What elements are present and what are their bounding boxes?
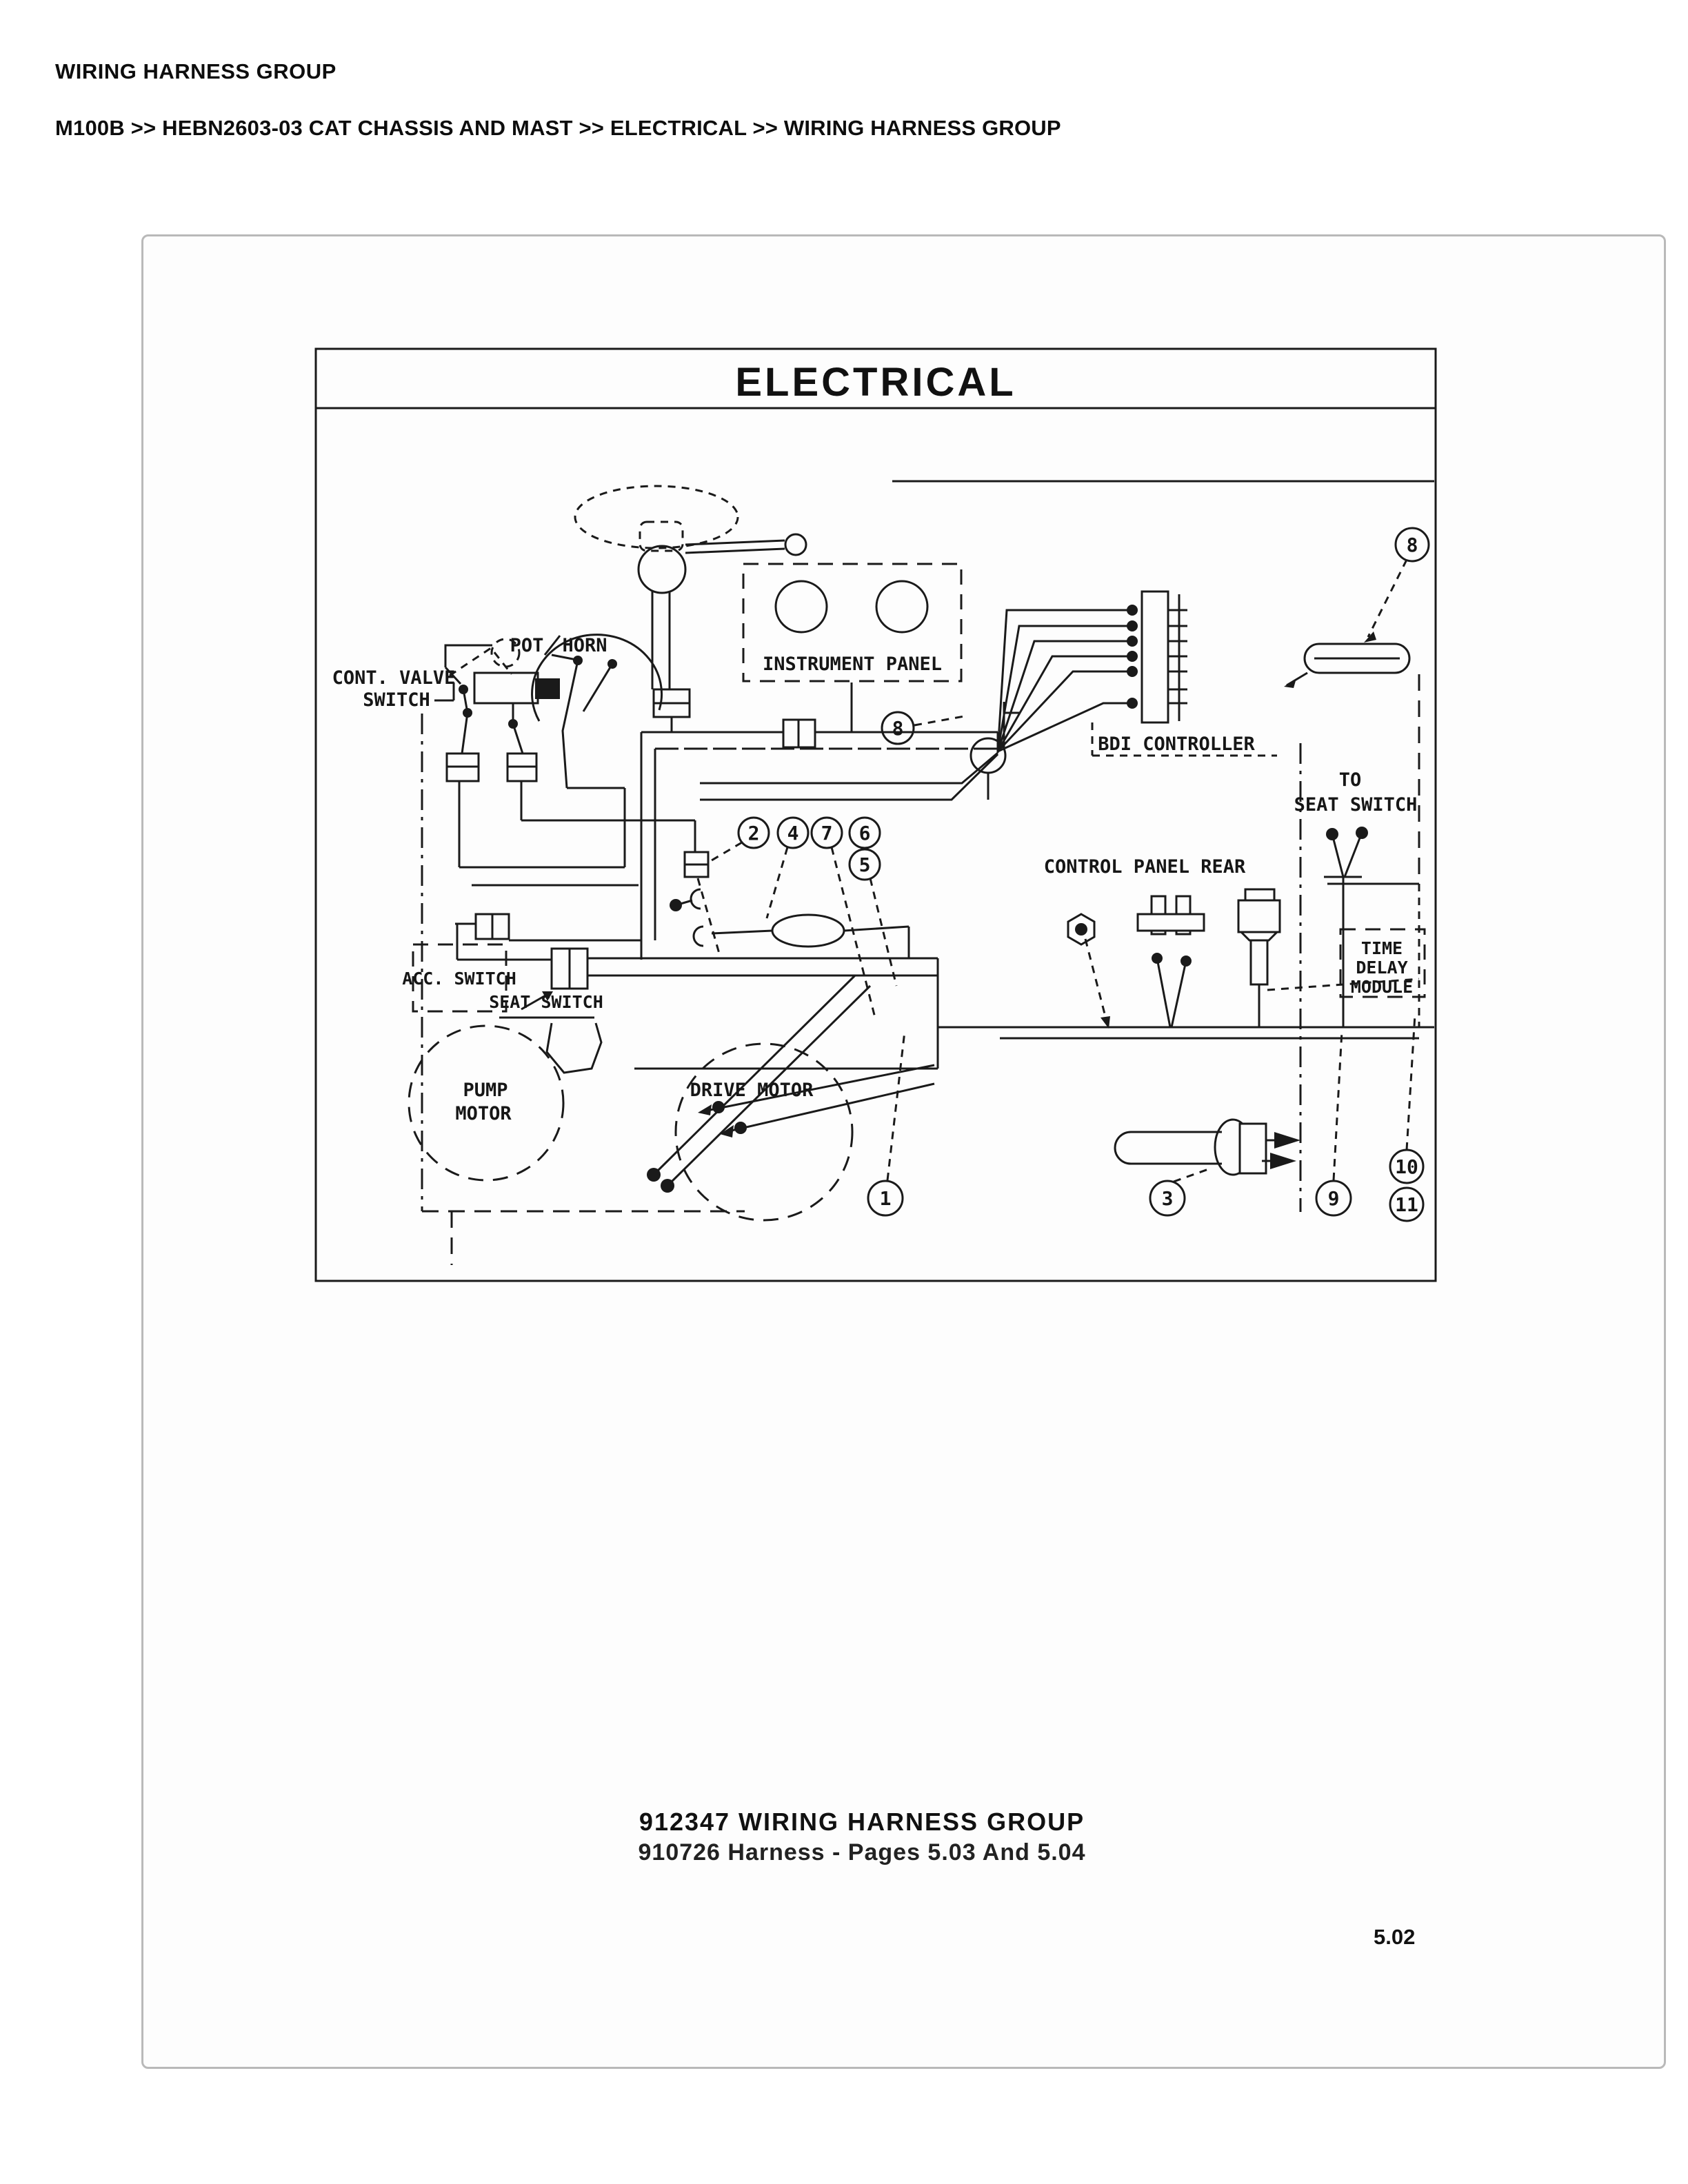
cont-valve-switch-symbol: CONT. VALVE SWITCH [332,645,492,754]
time-delay-label-3: MODULE [1351,977,1413,997]
caption-part-number: 912347 WIRING HARNESS GROUP [639,1808,1086,1837]
callout-9: 9 [1328,1187,1340,1210]
to-seat-switch-label-2: SEAT SWITCH [1294,794,1418,816]
time-delay-label-1: TIME [1361,938,1403,958]
key-switch [1245,889,1274,900]
time-delay-label-2: DELAY [1356,958,1407,978]
diagram-title: ELECTRICAL [735,360,1016,405]
callout-11: 11 [1395,1193,1418,1216]
connector-cluster [447,754,695,960]
pump-motor-label-2: MOTOR [455,1103,512,1124]
bdi-controller-label: BDI CONTROLLER [1098,734,1255,755]
callout-5: 5 [859,853,871,876]
callout-8-panel: 8 [892,717,904,740]
pot-label: POT [510,635,544,656]
callout-7: 7 [821,822,833,845]
cont-valve-switch-label-2: SWITCH [363,689,430,711]
steering-wheel-symbol [575,486,806,732]
pot-symbol: POT [450,635,560,754]
upper-harness-run: 8 [892,481,1434,884]
to-seat-switch-label-1: TO [1339,769,1362,791]
callout-8-harness: 8 [1407,534,1418,556]
time-delay-module: TIME DELAY MODULE [1340,884,1425,1027]
seat-switch-label: SEAT SWITCH [489,992,603,1012]
callout-6: 6 [859,822,871,845]
drive-motor-label: DRIVE MOTOR [690,1080,814,1101]
cont-valve-switch-label-1: CONT. VALVE [332,667,456,689]
control-panel-rear-label: CONTROL PANEL REAR [1044,856,1246,878]
manual-page: WIRING HARNESS GROUP M100B >> HEBN2603-0… [0,0,1688,2184]
instrument-panel-label: INSTRUMENT PANEL [763,654,942,675]
acc-switch-label: ACC. SWITCH [402,969,516,989]
lower-harness-bus [586,958,1434,1069]
figure-caption: 912347 WIRING HARNESS GROUP 910726 Harne… [639,1808,1086,1866]
instrument-panel-symbol: INSTRUMENT PANEL [743,564,961,681]
horn-label: HORN [562,635,607,656]
bdi-controller-symbol: BDI CONTROLLER [998,591,1277,756]
callout-2: 2 [748,822,760,845]
callout-4: 4 [787,822,799,845]
callout-3: 3 [1162,1187,1174,1210]
pump-motor-symbol: PUMP MOTOR [409,1026,563,1180]
caption-harness-ref: 910726 Harness - Pages 5.03 And 5.04 [639,1839,1086,1866]
callout-1: 1 [880,1187,892,1210]
fuse-assembly [1115,1120,1300,1175]
callouts: 2 4 7 6 5 1 3 9 10 11 [712,818,1423,1221]
page-number: 5.02 [1374,1925,1415,1950]
callout-10: 10 [1395,1155,1418,1178]
pump-motor-label-1: PUMP [463,1080,508,1101]
